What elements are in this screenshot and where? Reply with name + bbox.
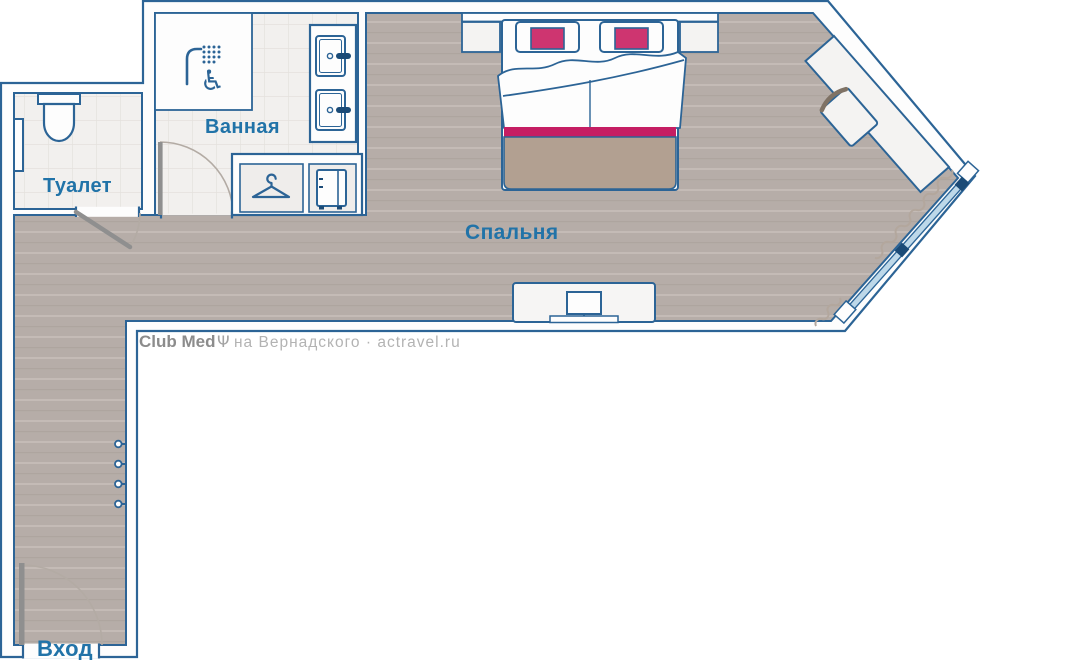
- watermark: Club Med Ψ на Вернадского · actravel.ru: [139, 332, 461, 351]
- pillow-left: [516, 22, 579, 52]
- towel-rail-icon: [14, 119, 23, 171]
- nightstand-left: [462, 22, 500, 52]
- room-label-bedroom: Спальня: [465, 221, 559, 244]
- wheelchair-accessible-icon: ♿: [200, 64, 225, 97]
- wardrobe: [232, 154, 362, 215]
- tv-console: [513, 283, 655, 323]
- watermark-suffix: на Вернадского · actravel.ru: [234, 334, 461, 351]
- bed-stripe: [504, 127, 676, 137]
- room-label-toilet: Туалет: [43, 175, 112, 197]
- toilet-doorway: [76, 207, 139, 218]
- nightstand-right: [680, 22, 718, 52]
- tv-icon: [567, 292, 601, 314]
- sink-icon: [316, 90, 351, 130]
- trident-logo-icon: Ψ: [217, 332, 230, 351]
- pillow-right: [600, 22, 663, 52]
- floor-plan: ♿: [0, 0, 1080, 660]
- watermark-brand: Club Med: [139, 332, 216, 351]
- blanket: [504, 137, 676, 189]
- floor-plan-svg: ♿: [0, 0, 1080, 660]
- sink-counter: [310, 25, 356, 142]
- minibar-icon: [317, 170, 346, 210]
- room-label-bathroom: Ванная: [205, 116, 280, 138]
- room-label-entrance: Вход: [37, 636, 93, 660]
- sink-icon: [316, 36, 351, 76]
